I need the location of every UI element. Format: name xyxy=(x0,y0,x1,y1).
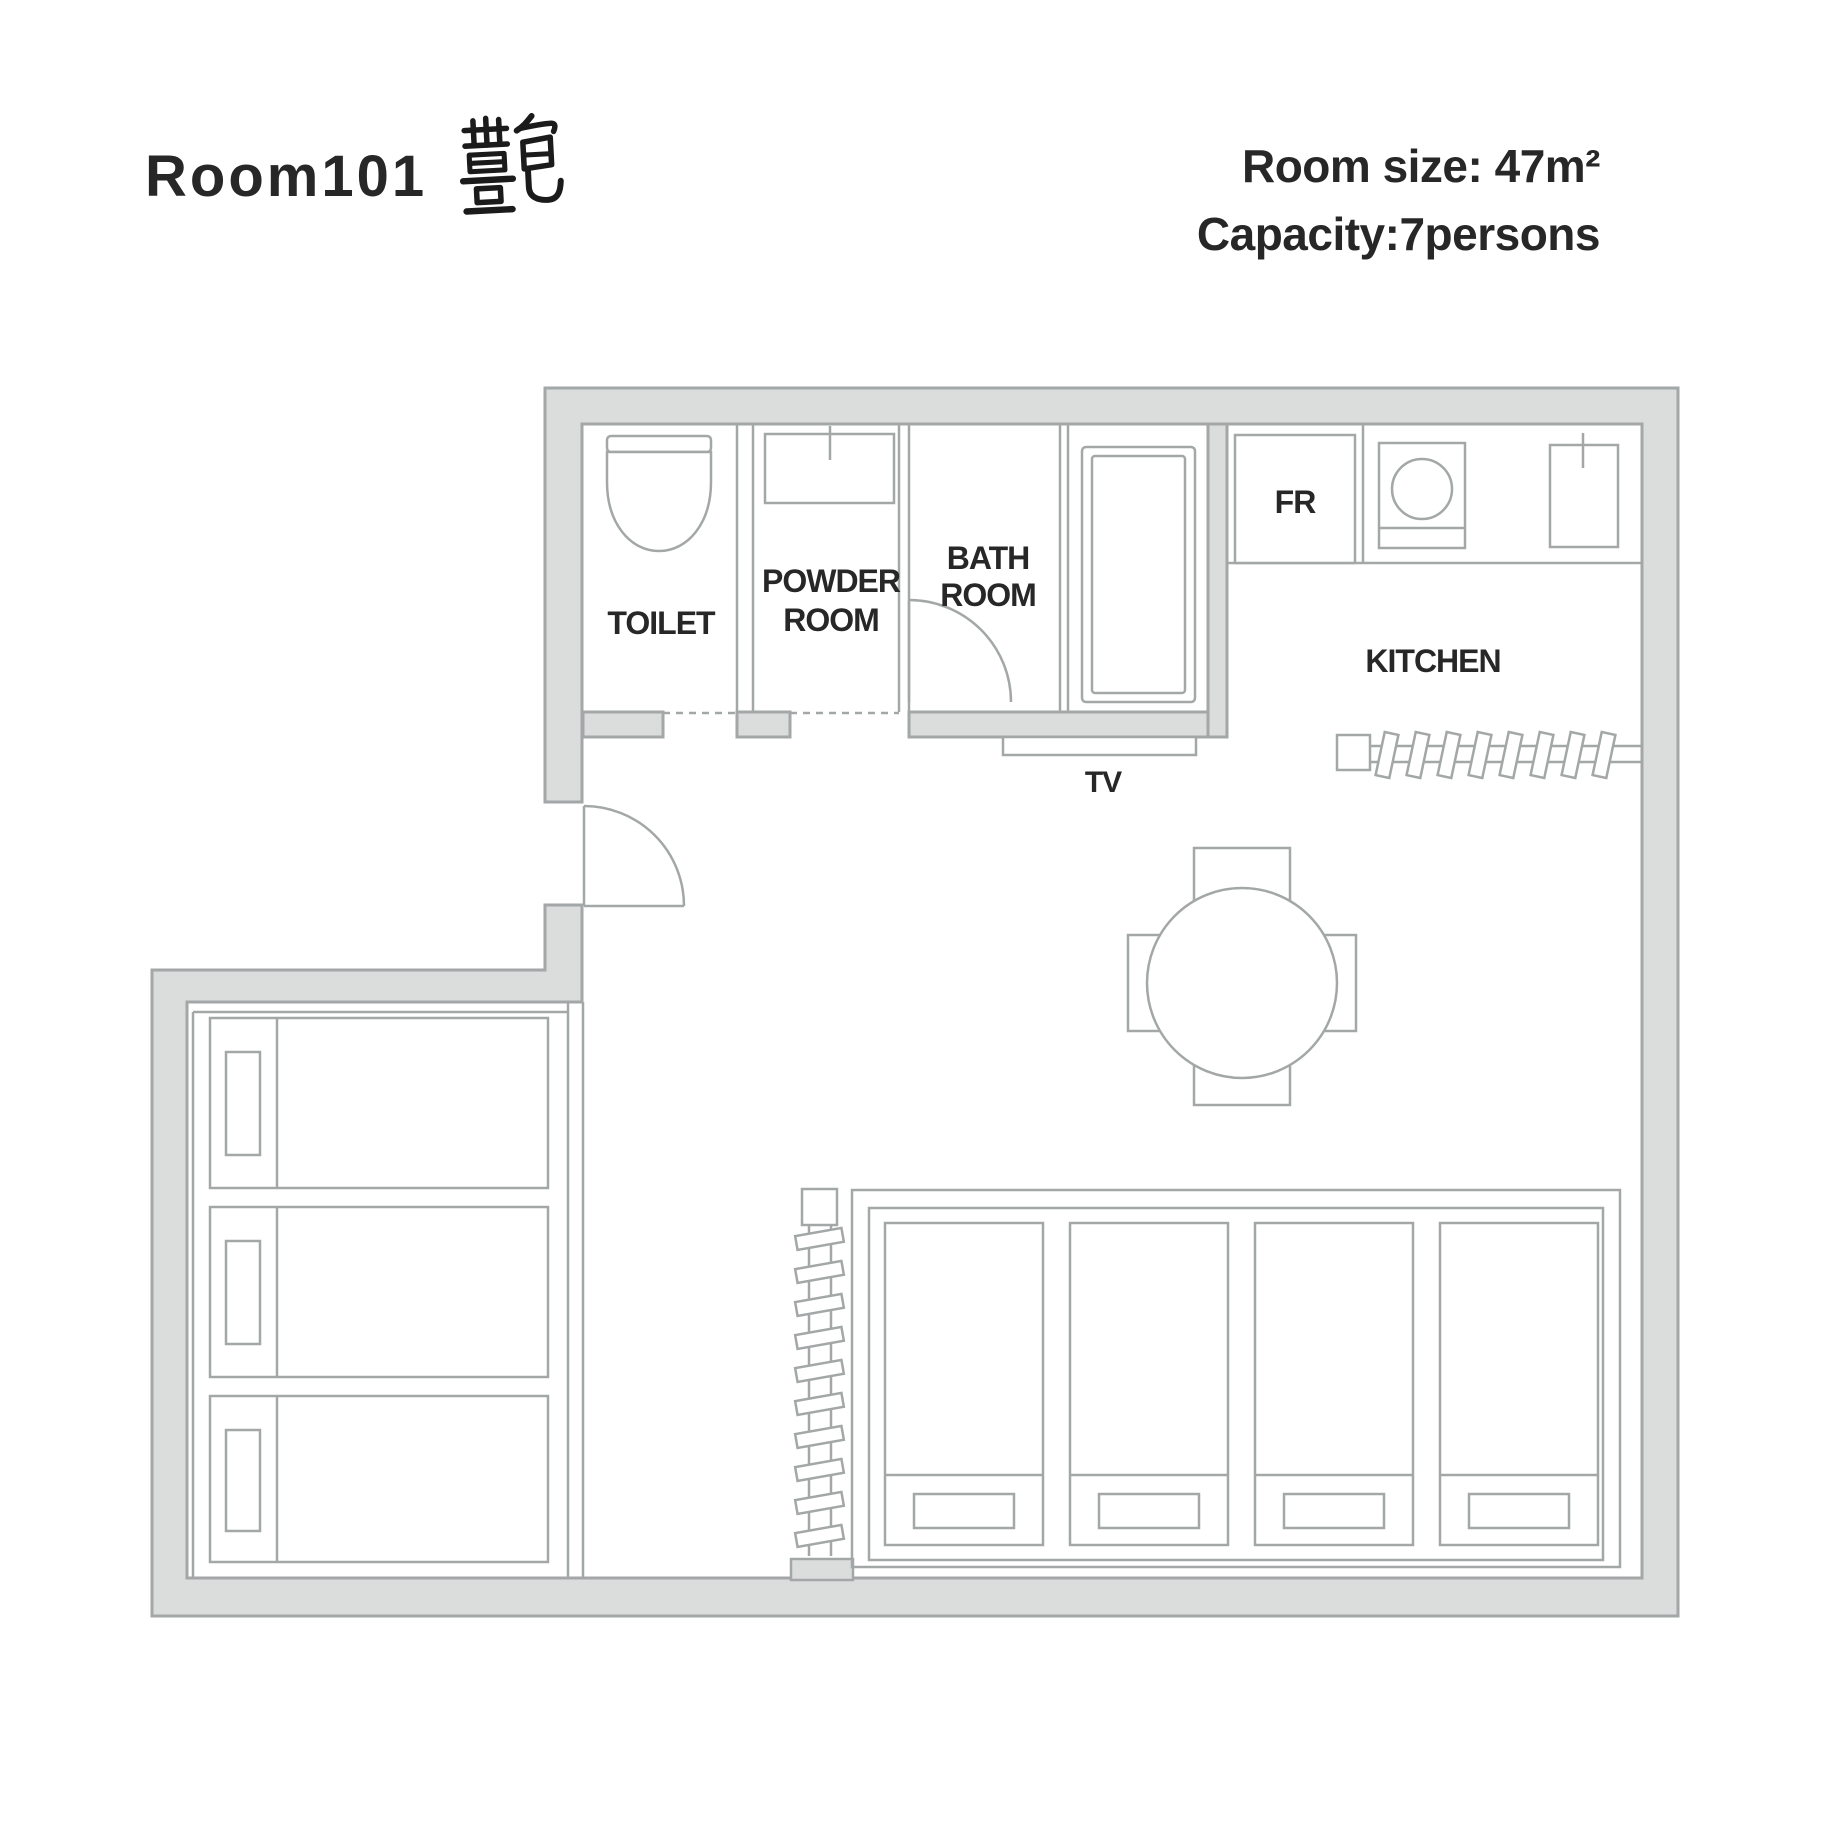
kitchen-sink-icon xyxy=(1550,433,1618,547)
floor-plan-page: Room101 Room size: 47m² Capacity:7person… xyxy=(0,0,1838,1838)
doors xyxy=(584,600,1011,906)
bed-icon xyxy=(1070,1223,1228,1545)
dining-set xyxy=(1128,848,1356,1105)
powder-sink-icon xyxy=(765,426,894,503)
powder-room-label-line2: ROOM xyxy=(783,602,879,638)
page-title: Room101 xyxy=(145,144,427,209)
bed-icon xyxy=(210,1018,548,1188)
bed-icon xyxy=(885,1223,1043,1545)
tv-label: TV xyxy=(1085,766,1122,799)
pillow-icon xyxy=(226,1241,260,1344)
bath-kitchen-wall xyxy=(1208,424,1227,737)
sanitary-wall-segment xyxy=(737,712,790,737)
round-table-icon xyxy=(1147,888,1337,1078)
pillow-icon xyxy=(1099,1494,1199,1528)
header: Room101 Room size: 47m² Capacity:7person… xyxy=(145,115,1600,260)
floor-plan-canvas: Room101 Room size: 47m² Capacity:7person… xyxy=(0,0,1838,1838)
powder-room-label-line1: POWDER xyxy=(762,563,901,599)
sanitary-wall-segment xyxy=(583,712,663,737)
title-calligraphy-icon xyxy=(460,115,562,212)
stove-icon xyxy=(1379,443,1465,548)
ladder-foot-stub xyxy=(791,1559,853,1580)
fridge-label: FR xyxy=(1275,484,1317,520)
horizontal-ladder-icon xyxy=(1337,732,1642,778)
pillow-icon xyxy=(1284,1494,1384,1528)
capacity-label: Capacity:7persons xyxy=(1197,208,1600,260)
bathtub-icon xyxy=(1082,447,1195,702)
bed-icon xyxy=(210,1207,548,1377)
pillow-icon xyxy=(1469,1494,1569,1528)
pillow-icon xyxy=(226,1430,260,1531)
vertical-ladder-icon xyxy=(795,1189,844,1556)
toilet-icon xyxy=(607,436,711,551)
bath-room-label-line2: ROOM xyxy=(940,577,1036,613)
left-beds xyxy=(210,1018,548,1562)
tv-stand-icon xyxy=(1003,737,1196,755)
pillow-icon xyxy=(914,1494,1014,1528)
sanitary-wall-segment xyxy=(909,712,1227,737)
entry-door-icon xyxy=(584,806,684,906)
bath-room-label-line1: BATH xyxy=(947,540,1030,576)
kitchen-label: KITCHEN xyxy=(1365,643,1500,679)
bed-icon xyxy=(1255,1223,1413,1545)
bed-icon xyxy=(210,1396,548,1562)
bed-icon xyxy=(1440,1223,1598,1545)
bottom-beds xyxy=(852,1190,1620,1567)
toilet-label: TOILET xyxy=(607,605,716,641)
bathroom-door-icon xyxy=(909,600,1011,702)
pillow-icon xyxy=(226,1052,260,1155)
room-size-label: Room size: 47m² xyxy=(1242,140,1600,192)
